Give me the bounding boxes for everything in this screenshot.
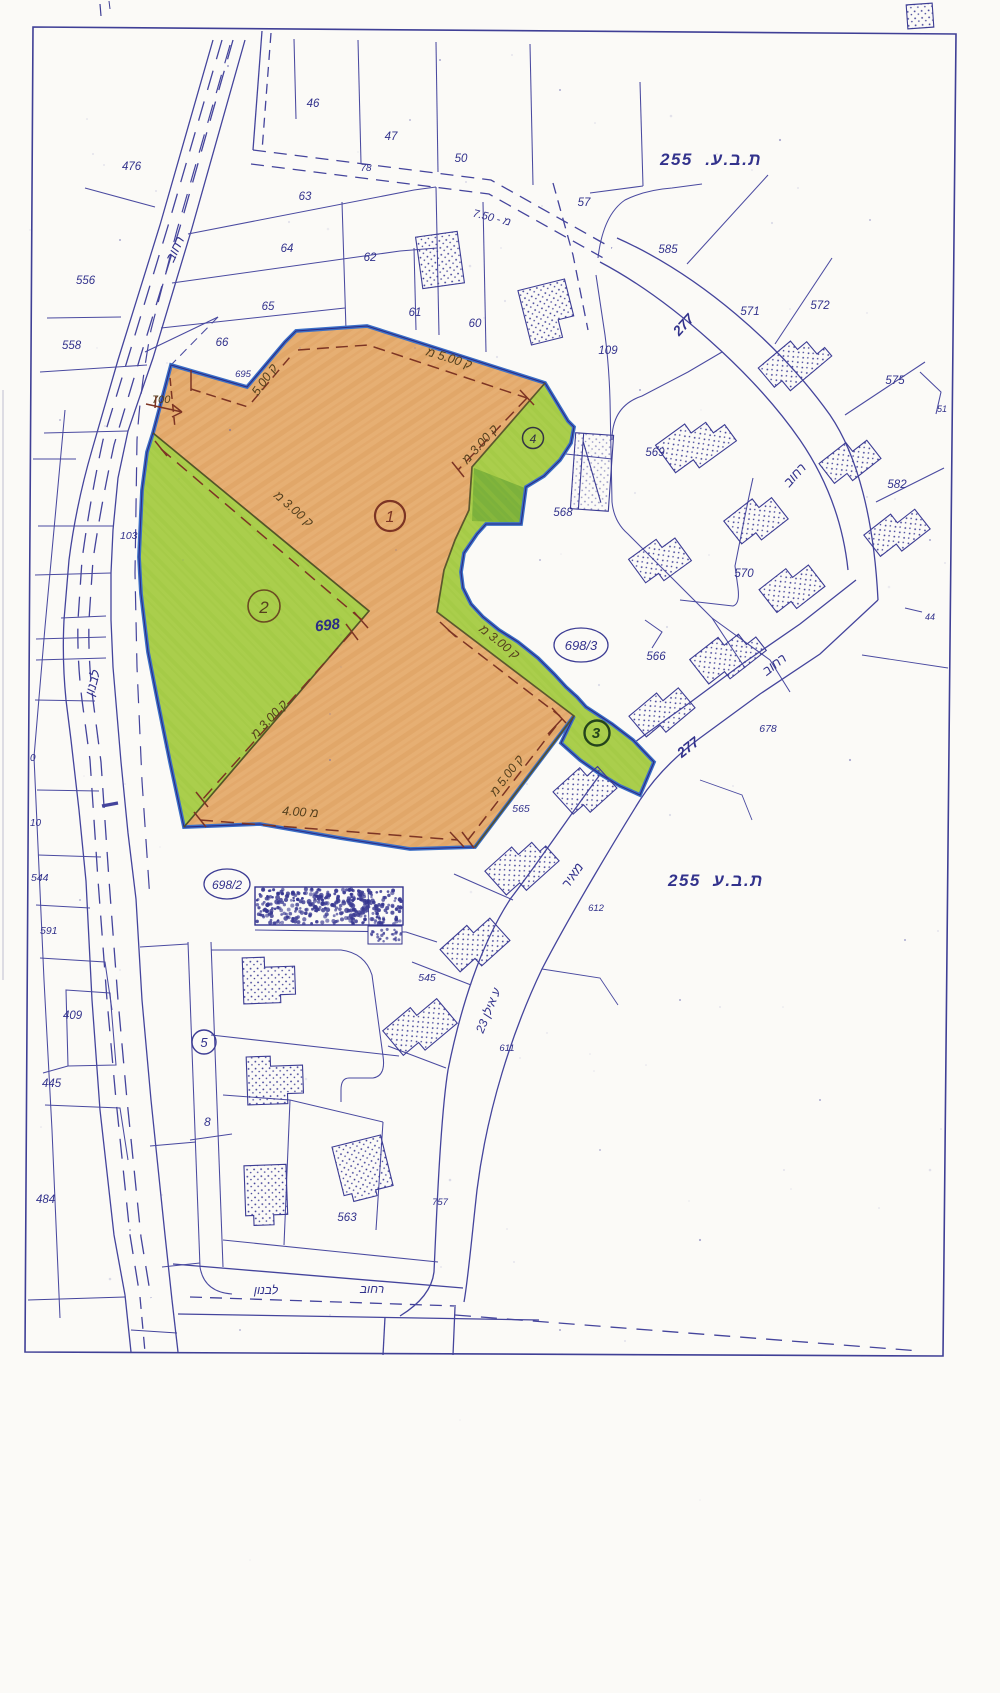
- svg-text:50: 50: [455, 153, 468, 165]
- svg-text:611: 611: [499, 1043, 514, 1054]
- svg-text:757: 757: [432, 1197, 449, 1208]
- svg-text:0: 0: [30, 753, 36, 764]
- svg-text:558: 558: [62, 340, 82, 352]
- svg-text:2: 2: [258, 598, 269, 617]
- svg-text:‭255 ע.ב.ת‬: ‭255 ע.ב.ת‬: [667, 871, 764, 890]
- svg-text:רחוב: רחוב: [359, 1282, 384, 1296]
- svg-text:60: 60: [469, 318, 482, 330]
- svg-text:3: 3: [592, 725, 601, 742]
- svg-text:‭255 .ע.ב.ת‬: ‭255 .ע.ב.ת‬: [659, 150, 762, 169]
- svg-text:698/2: 698/2: [212, 878, 242, 892]
- svg-text:569: 569: [645, 447, 665, 459]
- svg-text:66: 66: [216, 337, 229, 349]
- svg-text:544: 544: [31, 872, 49, 884]
- svg-text:65: 65: [262, 301, 275, 313]
- svg-text:698: 698: [314, 615, 342, 635]
- svg-text:109: 109: [598, 345, 618, 357]
- svg-text:484: 484: [36, 1194, 55, 1206]
- svg-text:78: 78: [360, 163, 372, 174]
- svg-text:10: 10: [30, 818, 42, 829]
- svg-text:571: 571: [740, 306, 759, 318]
- svg-text:4.00 מ: 4.00 מ: [282, 804, 319, 821]
- svg-text:700: 700: [152, 394, 171, 406]
- svg-text:582: 582: [887, 479, 907, 491]
- svg-text:570: 570: [734, 568, 754, 580]
- svg-text:409: 409: [63, 1010, 83, 1022]
- svg-text:612: 612: [588, 903, 605, 914]
- svg-text:44: 44: [925, 612, 935, 622]
- svg-text:62: 62: [364, 252, 377, 264]
- svg-text:585: 585: [658, 244, 678, 256]
- svg-text:57: 57: [578, 197, 591, 209]
- svg-text:לבנון: לבנון: [253, 1283, 279, 1297]
- svg-text:103: 103: [120, 530, 138, 542]
- svg-text:445: 445: [42, 1078, 62, 1090]
- svg-text:545: 545: [418, 972, 436, 984]
- svg-text:572: 572: [810, 300, 830, 312]
- svg-text:4: 4: [530, 432, 537, 446]
- svg-text:678: 678: [759, 723, 777, 735]
- svg-text:563: 563: [337, 1212, 357, 1224]
- svg-text:47: 47: [385, 131, 398, 143]
- svg-text:556: 556: [76, 275, 96, 287]
- svg-text:51: 51: [937, 404, 947, 414]
- svg-text:568: 568: [553, 507, 573, 519]
- svg-text:46: 46: [307, 98, 320, 110]
- svg-text:1: 1: [386, 509, 395, 526]
- svg-text:63: 63: [299, 191, 312, 203]
- svg-text:8: 8: [204, 1115, 211, 1129]
- svg-text:476: 476: [122, 161, 142, 173]
- svg-text:698/3: 698/3: [565, 638, 598, 653]
- svg-text:575: 575: [885, 375, 905, 387]
- svg-text:695: 695: [235, 369, 252, 380]
- svg-text:64: 64: [281, 243, 294, 255]
- svg-text:5: 5: [200, 1035, 208, 1050]
- svg-text:591: 591: [40, 925, 58, 937]
- svg-text:566: 566: [646, 651, 666, 663]
- svg-text:61: 61: [409, 307, 422, 319]
- svg-text:565: 565: [512, 803, 530, 815]
